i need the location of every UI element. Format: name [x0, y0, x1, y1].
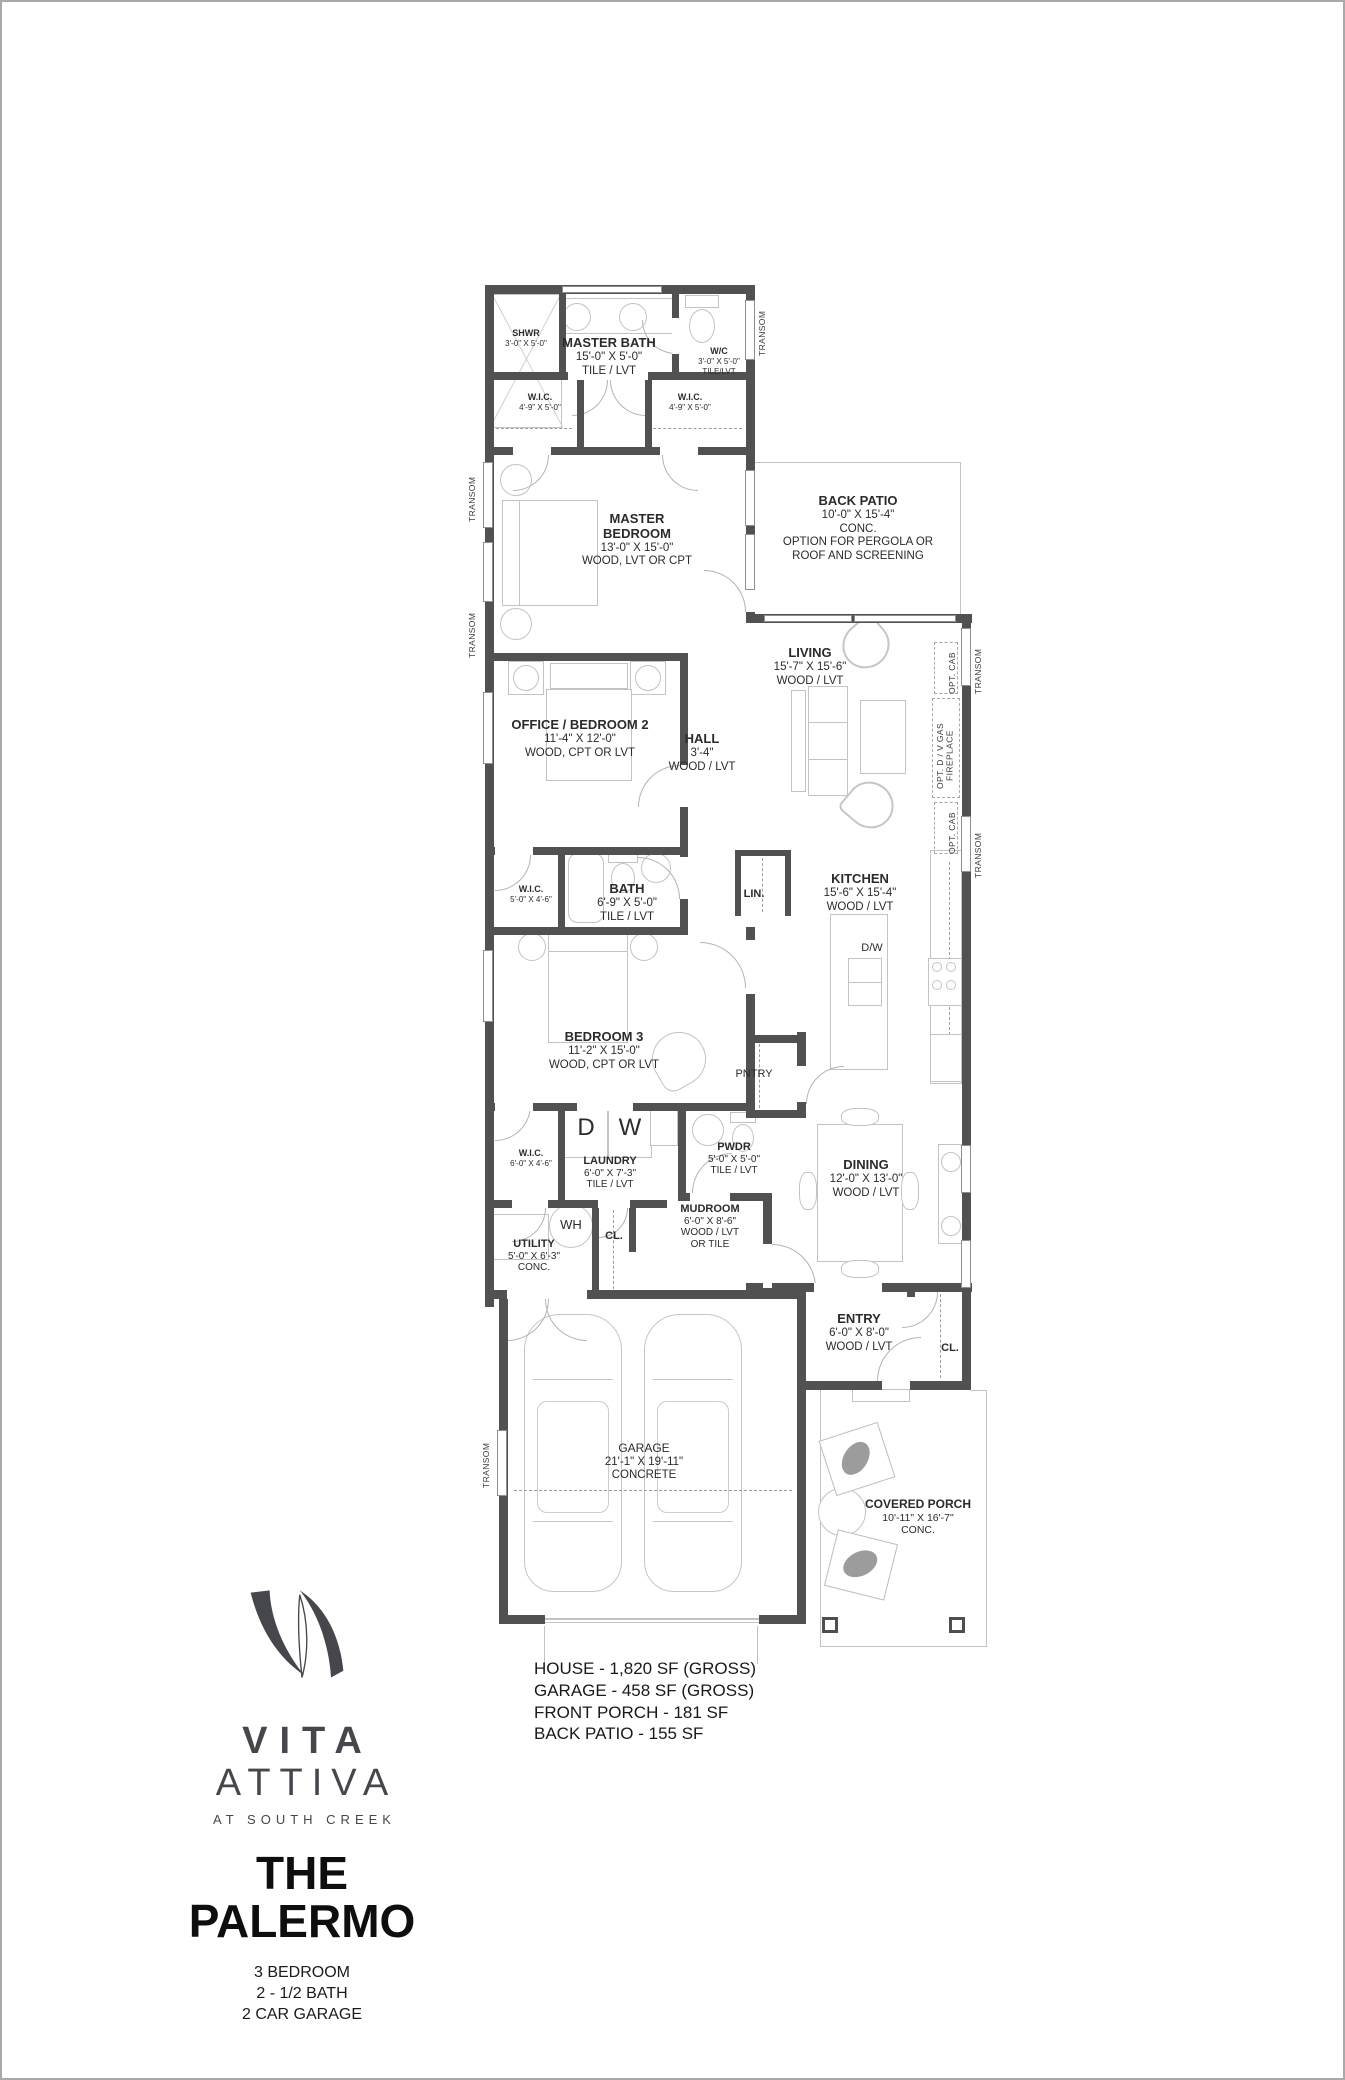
nightstand — [500, 608, 532, 640]
window — [961, 1145, 971, 1193]
room-dims: 15'-0" X 5'-0" — [539, 351, 679, 365]
porch-chair — [824, 1529, 898, 1600]
room-label-cl-mud: CL. — [594, 1230, 634, 1243]
room-name: CL. — [594, 1230, 634, 1243]
door-arc — [513, 455, 549, 491]
window — [854, 615, 956, 622]
room-name: COVERED PORCH — [838, 1498, 998, 1512]
room-floor: TILE / LVT — [539, 365, 679, 379]
headboard — [550, 663, 628, 689]
closet-shelf — [648, 428, 742, 429]
entry-step — [852, 1389, 910, 1402]
plan-specs: 3 BEDROOM 2 - 1/2 BATH 2 CAR GARAGE — [152, 1962, 452, 2025]
garage-door — [544, 1622, 759, 1623]
room-name: CL. — [930, 1342, 970, 1355]
room-dims: 11'-2" X 15'-0" — [524, 1045, 684, 1059]
room-label-office: OFFICE / BEDROOM 2 11'-4" X 12'-0" WOOD,… — [500, 718, 660, 760]
wall — [735, 850, 741, 916]
room-label-master-bedroom: MASTER BEDROOM 13'-0" X 15'-0" WOOD, LVT… — [562, 512, 712, 569]
room-name: ENTRY — [784, 1312, 934, 1327]
bed-pillow-line — [519, 500, 520, 606]
sofa-cushion-line — [808, 759, 848, 760]
label-washer: W — [608, 1114, 652, 1142]
logo-left-stroke — [251, 1590, 305, 1675]
room-name: PNTRY — [724, 1068, 784, 1081]
sink — [563, 303, 591, 331]
kitchen-sink-divider — [849, 982, 881, 983]
door-opening — [495, 847, 533, 855]
closet-rod — [940, 1294, 941, 1378]
room-name: W.I.C. — [488, 884, 574, 895]
patio-outline — [755, 462, 961, 463]
room-name: OFFICE / BEDROOM 2 — [500, 718, 660, 733]
door-opening — [507, 1290, 587, 1299]
room-floor: WOOD / LVT OR TILE — [640, 1227, 780, 1251]
wall — [735, 850, 791, 856]
room-floor: CONC. — [752, 523, 964, 537]
room-name: W/C — [679, 346, 759, 357]
room-floor: WOOD, CPT OR LVT — [500, 747, 660, 761]
room-floor: CONCRETE — [569, 1469, 719, 1483]
door-opening — [797, 1066, 806, 1102]
room-dims: 4'-9" X 5'-0" — [647, 403, 733, 413]
spec-bedrooms: 3 BEDROOM — [152, 1962, 452, 1983]
opt-cab-label: OPT. CAB — [948, 804, 960, 862]
door-opening — [690, 1193, 730, 1201]
burner — [946, 980, 956, 990]
door-opening — [688, 927, 746, 935]
room-dims: 3'-0" X 5'-0" — [679, 357, 759, 367]
door-opening — [814, 1283, 882, 1292]
spec-baths: 2 - 1/2 BATH — [152, 1983, 452, 2004]
wall — [645, 372, 652, 455]
porch-chair — [819, 1422, 896, 1496]
room-name: PWDR — [684, 1141, 784, 1154]
door-arc — [704, 570, 746, 612]
room-dims: 6'-0" X 7'-3" — [551, 1168, 669, 1180]
door-arc — [806, 1066, 844, 1104]
room-dims: 5'-0" X 5'-0" — [684, 1154, 784, 1166]
lamp — [635, 665, 661, 691]
area-line-house: HOUSE - 1,820 SF (GROSS) — [534, 1658, 756, 1680]
window — [483, 462, 493, 528]
lamp — [513, 665, 539, 691]
laundry-sink — [650, 1110, 678, 1146]
room-name: DINING — [791, 1158, 941, 1173]
bed — [548, 931, 628, 1043]
porch-post — [822, 1617, 838, 1633]
transom-label: TRANSOM — [468, 600, 482, 670]
chair-cushion — [839, 1545, 882, 1582]
transom-label: TRANSOM — [468, 464, 482, 534]
window — [483, 692, 493, 764]
room-dims: 4'-9" X 5'-0" — [498, 403, 582, 413]
window — [483, 950, 493, 1022]
transom-label: TRANSOM — [482, 1430, 496, 1500]
door-arc — [662, 455, 698, 491]
nightstand — [518, 933, 546, 961]
porch-outline — [971, 1390, 987, 1391]
room-dims: 6'-0" X 8'-0" — [784, 1327, 934, 1341]
room-label-cl-entry: CL. — [930, 1342, 970, 1355]
floor-plan-sheet: MASTER BATH 15'-0" X 5'-0" TILE / LVT SH… — [0, 0, 1345, 2080]
dining-chair — [841, 1260, 879, 1278]
room-dims: 6'-0" X 8'-6" — [640, 1216, 780, 1228]
sofa-cushion-line — [808, 722, 848, 723]
bed-pillow-line — [548, 951, 628, 952]
room-dims: 5'-0" X 6'-3" — [484, 1251, 584, 1263]
room-label-entry: ENTRY 6'-0" X 8'-0" WOOD / LVT — [784, 1312, 934, 1354]
room-dims: 15'-6" X 15'-4" — [785, 887, 935, 901]
room-floor: WOOD / LVT — [785, 901, 935, 915]
room-floor: WOOD / LVT — [791, 1187, 941, 1201]
door-opening — [746, 940, 755, 994]
transom-label: TRANSOM — [974, 820, 988, 890]
window — [497, 1430, 507, 1496]
window — [483, 542, 493, 602]
plan-title-the: THE — [152, 1850, 452, 1896]
room-dims: 5'-0" X 4'-6" — [488, 895, 574, 905]
room-note: OPTION FOR PERGOLA OR ROOF AND SCREENING — [752, 536, 964, 563]
door-opening — [512, 1200, 548, 1208]
wall — [485, 653, 688, 661]
room-floor: TILE / LVT — [551, 1179, 669, 1191]
room-label-lin: LIN. — [729, 888, 779, 901]
room-label-wc: W/C 3'-0" X 5'-0" TILE/LVT — [679, 346, 759, 378]
burner — [946, 962, 956, 972]
area-line-garage: GARAGE - 458 SF (GROSS) — [534, 1680, 756, 1702]
vita-attiva-logo — [235, 1588, 369, 1700]
room-label-living: LIVING 15'-7" X 15'-6" WOOD / LVT — [735, 646, 885, 688]
room-dims: 10'-0" X 15'-4" — [752, 509, 964, 523]
room-name: W.I.C. — [647, 392, 733, 403]
door-opening — [660, 447, 698, 455]
door-opening — [598, 1200, 630, 1208]
wall — [802, 1381, 882, 1390]
label-dryer: D — [564, 1114, 608, 1142]
room-label-bedroom3: BEDROOM 3 11'-2" X 15'-0" WOOD, CPT OR L… — [524, 1030, 684, 1072]
car-windshield — [653, 1379, 733, 1380]
room-name: LIVING — [735, 646, 885, 661]
room-label-wic-hall: W.I.C. 5'-0" X 4'-6" — [488, 884, 574, 905]
room-name: BATH — [569, 882, 685, 897]
brand-name-attiva: ATTIVA — [152, 1762, 452, 1805]
chair-cushion — [836, 1437, 875, 1480]
car-rear-window — [533, 1521, 613, 1522]
sideboard-knob — [941, 1216, 961, 1236]
room-label-shwr: SHWR 3'-0" X 5'-0" — [491, 328, 561, 349]
fixture-name: WH — [549, 1218, 593, 1233]
room-floor: WOOD, LVT OR CPT — [562, 555, 712, 569]
window — [961, 1240, 971, 1288]
room-name: BACK PATIO — [752, 494, 964, 509]
room-label-covered-porch: COVERED PORCH 10'-11" X 16'-7" CONC. — [838, 1498, 998, 1537]
room-floor: CONC. — [484, 1262, 584, 1274]
garage-door — [544, 1618, 759, 1620]
transom-label: TRANSOM — [974, 636, 988, 706]
toilet-bowl — [689, 309, 715, 343]
room-dims: 3'-0" X 5'-0" — [491, 339, 561, 349]
window — [961, 628, 971, 686]
door-opening — [513, 447, 551, 455]
wall — [499, 1615, 545, 1624]
room-dims: 21'-1" X 19'-11" — [569, 1456, 719, 1470]
room-dims: 3'-4" — [662, 747, 742, 761]
room-name: KITCHEN — [785, 872, 935, 887]
room-name: BEDROOM 3 — [524, 1030, 684, 1045]
opt-cab-label: OPT. CAB — [948, 644, 960, 702]
nightstand — [630, 933, 658, 961]
room-floor: WOOD / LVT — [784, 1341, 934, 1355]
brand-name-vita: VITA — [152, 1720, 452, 1763]
fireplace-label: OPT. D / V GAS FIREPLACE — [936, 700, 962, 812]
wall — [910, 1381, 971, 1390]
door-arc — [700, 942, 746, 988]
room-name: GARAGE — [569, 1442, 719, 1456]
room-name: UTILITY — [484, 1238, 584, 1251]
room-label-garage: GARAGE 21'-1" X 19'-11" CONCRETE — [569, 1442, 719, 1483]
window — [764, 615, 852, 622]
window — [961, 816, 971, 872]
plan-title-palermo: PALERMO — [152, 1898, 452, 1944]
room-name: MUDROOM — [640, 1203, 780, 1216]
toilet-tank — [685, 295, 719, 308]
area-line-back-patio: BACK PATIO - 155 SF — [534, 1723, 756, 1745]
room-label-wic-master-left: W.I.C. 4'-9" X 5'-0" — [498, 392, 582, 413]
room-label-mudroom: MUDROOM 6'-0" X 8'-6" WOOD / LVT OR TILE — [640, 1203, 780, 1251]
room-label-wic-master-right: W.I.C. 4'-9" X 5'-0" — [647, 392, 733, 413]
room-dims: 13'-0" X 15'-0" — [562, 542, 712, 556]
driveway-edge — [757, 1626, 758, 1664]
closet-shelf — [496, 428, 572, 429]
label-water-heater: WH — [549, 1218, 593, 1233]
room-floor: CONC. — [838, 1524, 998, 1536]
room-name: MASTER BEDROOM — [562, 512, 712, 542]
room-label-pwdr: PWDR 5'-0" X 5'-0" TILE / LVT — [684, 1141, 784, 1177]
sofa — [808, 686, 848, 796]
wall — [907, 1283, 915, 1297]
room-floor: WOOD / LVT — [735, 675, 885, 689]
room-label-dining: DINING 12'-0" X 13'-0" WOOD / LVT — [791, 1158, 941, 1200]
garage-setback-line — [514, 1490, 792, 1491]
room-floor: TILE/LVT — [679, 367, 759, 377]
dining-chair — [841, 1108, 879, 1126]
cabinet — [930, 1034, 962, 1082]
room-name: W.I.C. — [498, 392, 582, 403]
room-label-hall: HALL 3'-4" WOOD / LVT — [662, 732, 742, 774]
burner — [932, 980, 942, 990]
area-line-front-porch: FRONT PORCH - 181 SF — [534, 1702, 756, 1724]
porch-outline — [820, 1646, 987, 1647]
door-opening — [577, 1103, 633, 1111]
wall — [592, 1207, 599, 1298]
car-windshield — [533, 1379, 613, 1380]
room-dims: 15'-7" X 15'-6" — [735, 661, 885, 675]
area-summary: HOUSE - 1,820 SF (GROSS) GARAGE - 458 SF… — [534, 1658, 756, 1745]
room-dims: 6'-9" X 5'-0" — [569, 897, 685, 911]
wall — [577, 372, 584, 455]
room-floor: WOOD, CPT OR LVT — [524, 1059, 684, 1073]
room-label-bath: BATH 6'-9" X 5'-0" TILE / LVT — [569, 882, 685, 924]
coffee-table — [860, 700, 906, 774]
wall — [629, 1200, 636, 1252]
room-name: SHWR — [491, 328, 561, 339]
room-dims: 11'-4" X 12'-0" — [500, 733, 660, 747]
transom-label: TRANSOM — [758, 298, 772, 368]
room-floor: TILE / LVT — [684, 1165, 784, 1177]
room-label-back-patio: BACK PATIO 10'-0" X 15'-4" CONC. OPTION … — [752, 494, 964, 563]
window — [562, 286, 662, 293]
door-opening — [495, 1103, 533, 1111]
logo-leaf — [299, 1595, 307, 1678]
room-floor: WOOD / LVT — [662, 761, 742, 775]
room-label-utility: UTILITY 5'-0" X 6'-3" CONC. — [484, 1238, 584, 1274]
porch-post — [949, 1617, 965, 1633]
room-dims: 12'-0" X 13'-0" — [791, 1173, 941, 1187]
room-label-kitchen: KITCHEN 15'-6" X 15'-4" WOOD / LVT — [785, 872, 935, 914]
room-floor: TILE / LVT — [569, 911, 685, 925]
label-dishwasher: D/W — [847, 942, 897, 955]
closet-rod — [762, 858, 763, 912]
brand-tagline: AT SOUTH CREEK — [152, 1812, 452, 1827]
door-arc — [610, 380, 646, 416]
room-name: HALL — [662, 732, 742, 747]
car-rear-window — [653, 1521, 733, 1522]
spec-garage: 2 CAR GARAGE — [152, 2004, 452, 2025]
fixture-name: D/W — [847, 942, 897, 955]
room-name: LAUNDRY — [551, 1155, 669, 1168]
console-table — [791, 690, 806, 792]
sideboard-knob — [941, 1152, 961, 1172]
room-label-pntry: PNTRY — [724, 1068, 784, 1081]
room-dims: 10'-11" X 16'-7" — [838, 1512, 998, 1524]
room-label-laundry: LAUNDRY 6'-0" X 7'-3" TILE / LVT — [551, 1155, 669, 1191]
wall — [759, 1615, 806, 1624]
room-name: LIN. — [729, 888, 779, 901]
burner — [932, 962, 942, 972]
